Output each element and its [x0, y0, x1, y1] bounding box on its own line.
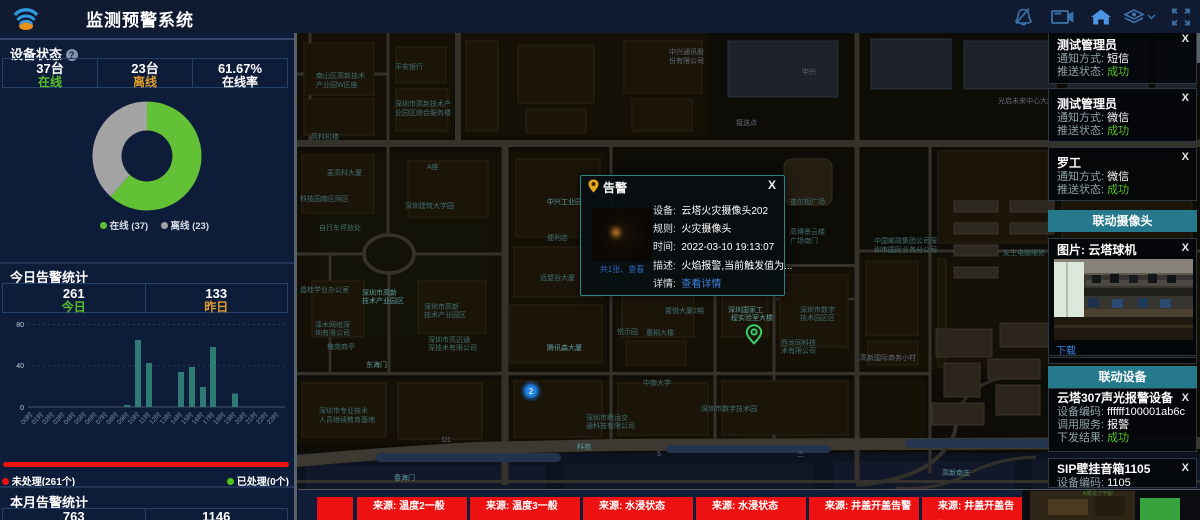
svg-text:40: 40: [16, 363, 24, 370]
svg-text:远望谷大厦: 远望谷大厦: [540, 273, 575, 282]
svg-text:科技园南区网区: 科技园南区网区: [300, 194, 349, 203]
svg-text:中国邮政集团公司深: 中国邮政集团公司深: [874, 236, 937, 245]
svg-text:术有限公司: 术有限公司: [781, 346, 816, 355]
svg-text:深技术有限公司: 深技术有限公司: [428, 343, 477, 352]
svg-text:光启未来中心大厦: 光启未来中心大厦: [998, 96, 1054, 105]
svg-text:三: 三: [797, 450, 804, 458]
svg-text:昌桂学业办公室: 昌桂学业办公室: [300, 285, 349, 294]
svg-text:深圳市高新技术产: 深圳市高新技术产: [395, 99, 451, 108]
svg-text:深圳市数字技术园: 深圳市数字技术园: [701, 404, 757, 413]
svg-text:程实验室大楼: 程实验室大楼: [731, 313, 773, 322]
svg-text:科苑: 科苑: [577, 442, 591, 451]
svg-text:东海门: 东海门: [366, 360, 387, 369]
svg-text:查尔相广场: 查尔相广场: [790, 197, 825, 206]
svg-text:友生电脑维修: 友生电脑维修: [1003, 248, 1045, 257]
svg-text:广场南门: 广场南门: [790, 236, 818, 245]
svg-text:悦示园: 悦示园: [617, 327, 638, 336]
svg-text:深圳国家工: 深圳国家工: [728, 305, 763, 314]
svg-text:深圳市鼎运交: 深圳市鼎运交: [586, 413, 628, 422]
svg-text:深圳市高迈通: 深圳市高迈通: [428, 335, 470, 344]
svg-text:圳有限公司: 圳有限公司: [315, 328, 350, 337]
svg-text:通科技有限公司: 通科技有限公司: [586, 421, 635, 430]
svg-text:麦高科大厦: 麦高科大厦: [327, 168, 362, 177]
svg-text:产业园W区座: 产业园W区座: [316, 80, 358, 89]
svg-text:深圳市高新: 深圳市高新: [362, 288, 397, 297]
svg-text:腾讯森大厦: 腾讯森大厦: [547, 343, 582, 352]
svg-text:0: 0: [20, 405, 24, 412]
svg-text:南山区高新技术: 南山区高新技术: [316, 71, 365, 80]
svg-text:高博景云楼: 高博景云楼: [790, 227, 825, 236]
svg-text:自行车停放处: 自行车停放处: [319, 223, 361, 232]
svg-text:2: 2: [529, 387, 534, 396]
svg-text:置悦大厦2期: 置悦大厦2期: [665, 306, 704, 315]
svg-text:西龙同科技: 西龙同科技: [781, 338, 816, 347]
svg-text:春海门: 春海门: [394, 473, 415, 482]
svg-text:技术园区区: 技术园区区: [800, 313, 835, 322]
svg-text:5: 5: [657, 451, 661, 458]
svg-text:便利店: 便利店: [547, 233, 568, 242]
svg-text:中兴通讯股: 中兴通讯股: [669, 47, 704, 56]
svg-text:人员继续教育基地: 人员继续教育基地: [319, 415, 375, 424]
svg-text:D1: D1: [442, 437, 451, 444]
svg-text:深圳市专业技术: 深圳市专业技术: [319, 406, 368, 415]
svg-text:高新国际商务小村: 高新国际商务小村: [860, 353, 916, 362]
svg-text:深圳市数字: 深圳市数字: [800, 305, 835, 314]
svg-text:泽木网络深: 泽木网络深: [315, 320, 350, 329]
svg-text:中兴工业园: 中兴工业园: [547, 197, 582, 206]
svg-text:圳市国际业务分公司: 圳市国际业务分公司: [874, 245, 937, 254]
svg-text:份有限公司: 份有限公司: [669, 56, 704, 65]
svg-text:业园区综合服务楼: 业园区综合服务楼: [395, 108, 451, 117]
svg-text:深圳市高新: 深圳市高新: [424, 302, 459, 311]
svg-text:惠桐大楼: 惠桐大楼: [646, 328, 674, 337]
svg-text:80: 80: [16, 322, 24, 329]
svg-text:中兴: 中兴: [802, 67, 816, 76]
svg-text:高新南庄: 高新南庄: [942, 468, 970, 477]
svg-text:平安银行: 平安银行: [395, 62, 423, 71]
svg-text:深圳建筑大学园: 深圳建筑大学园: [405, 201, 454, 210]
svg-text:技术产业园区: 技术产业园区: [362, 296, 404, 305]
svg-text:接送点: 接送点: [736, 118, 757, 127]
svg-text:梅苑商亭: 梅苑商亭: [327, 342, 355, 351]
svg-text:中南大学: 中南大学: [643, 378, 671, 387]
svg-text:A座: A座: [427, 162, 439, 171]
svg-text:高科机楼: 高科机楼: [311, 132, 339, 141]
svg-text:技术产业园区: 技术产业园区: [424, 310, 466, 319]
